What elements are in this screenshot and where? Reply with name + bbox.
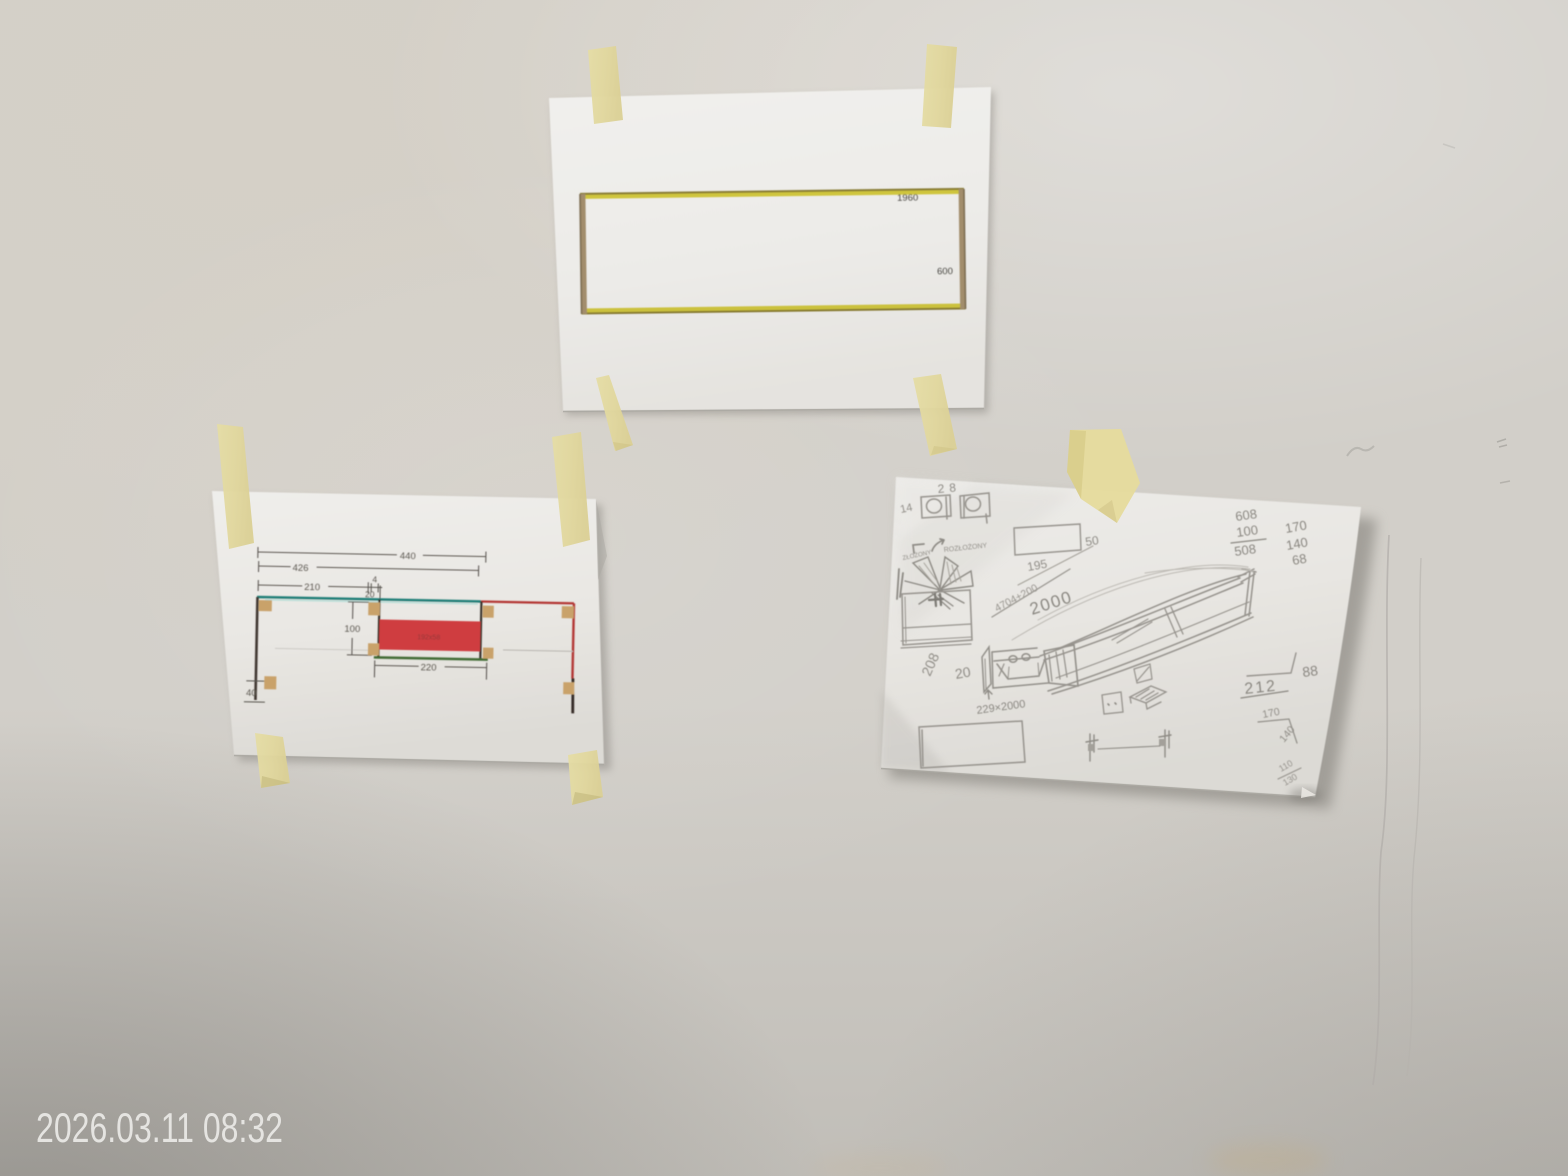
- svg-text:14: 14: [899, 502, 913, 516]
- svg-text:88: 88: [1301, 662, 1319, 680]
- svg-text:426: 426: [292, 563, 308, 574]
- svg-text:100: 100: [1235, 522, 1259, 540]
- svg-text:20: 20: [365, 589, 375, 599]
- svg-text:608: 608: [1234, 506, 1258, 524]
- svg-text:210: 210: [304, 582, 320, 593]
- svg-text:440: 440: [400, 551, 416, 562]
- svg-text:600: 600: [937, 266, 953, 277]
- svg-text:68: 68: [1291, 551, 1308, 568]
- svg-text:20: 20: [954, 663, 972, 681]
- svg-text:220: 220: [421, 662, 437, 673]
- svg-text:28: 28: [937, 480, 961, 496]
- svg-text:4: 4: [372, 574, 377, 584]
- svg-text:100: 100: [344, 624, 360, 635]
- svg-text:1960: 1960: [897, 193, 918, 204]
- svg-text:192x58: 192x58: [417, 634, 440, 641]
- svg-text:508: 508: [1233, 541, 1257, 559]
- svg-text:2026.03.11 08:32: 2026.03.11 08:32: [36, 1104, 283, 1151]
- svg-text:40: 40: [246, 688, 257, 699]
